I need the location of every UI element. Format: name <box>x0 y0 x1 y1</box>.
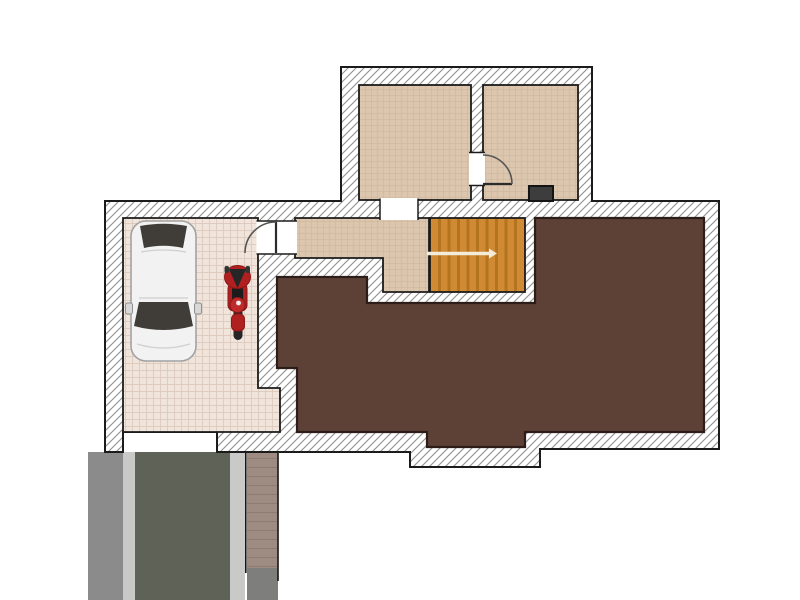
top-right-room-floor <box>483 85 578 200</box>
motorcycle-mirror-right <box>246 266 251 273</box>
floor-plan-svg <box>0 0 800 600</box>
car <box>126 221 202 361</box>
motorcycle-fender <box>232 314 245 331</box>
car-mirror-right <box>195 303 202 314</box>
room-passage-opening <box>380 198 418 220</box>
motorcycle-tail-light <box>236 301 241 306</box>
driveway <box>88 452 278 600</box>
staircase <box>427 218 525 292</box>
floor-plan-page <box>0 0 800 600</box>
driveway-side-strip <box>88 452 123 600</box>
door-gap <box>469 152 485 186</box>
driveway-asphalt <box>135 452 230 600</box>
dark-fixture <box>529 186 553 201</box>
passage-gap <box>380 198 418 220</box>
car-rear-window <box>140 224 187 248</box>
brick-walkway <box>247 452 278 568</box>
driveway-curb-right <box>230 452 245 600</box>
driveway-curb-left <box>123 452 135 600</box>
car-windshield <box>134 302 193 330</box>
car-mirror-left <box>126 303 133 314</box>
top-left-room-floor <box>359 85 471 200</box>
walkway-end-gray <box>247 568 278 600</box>
motorcycle-mirror-left <box>225 266 230 273</box>
